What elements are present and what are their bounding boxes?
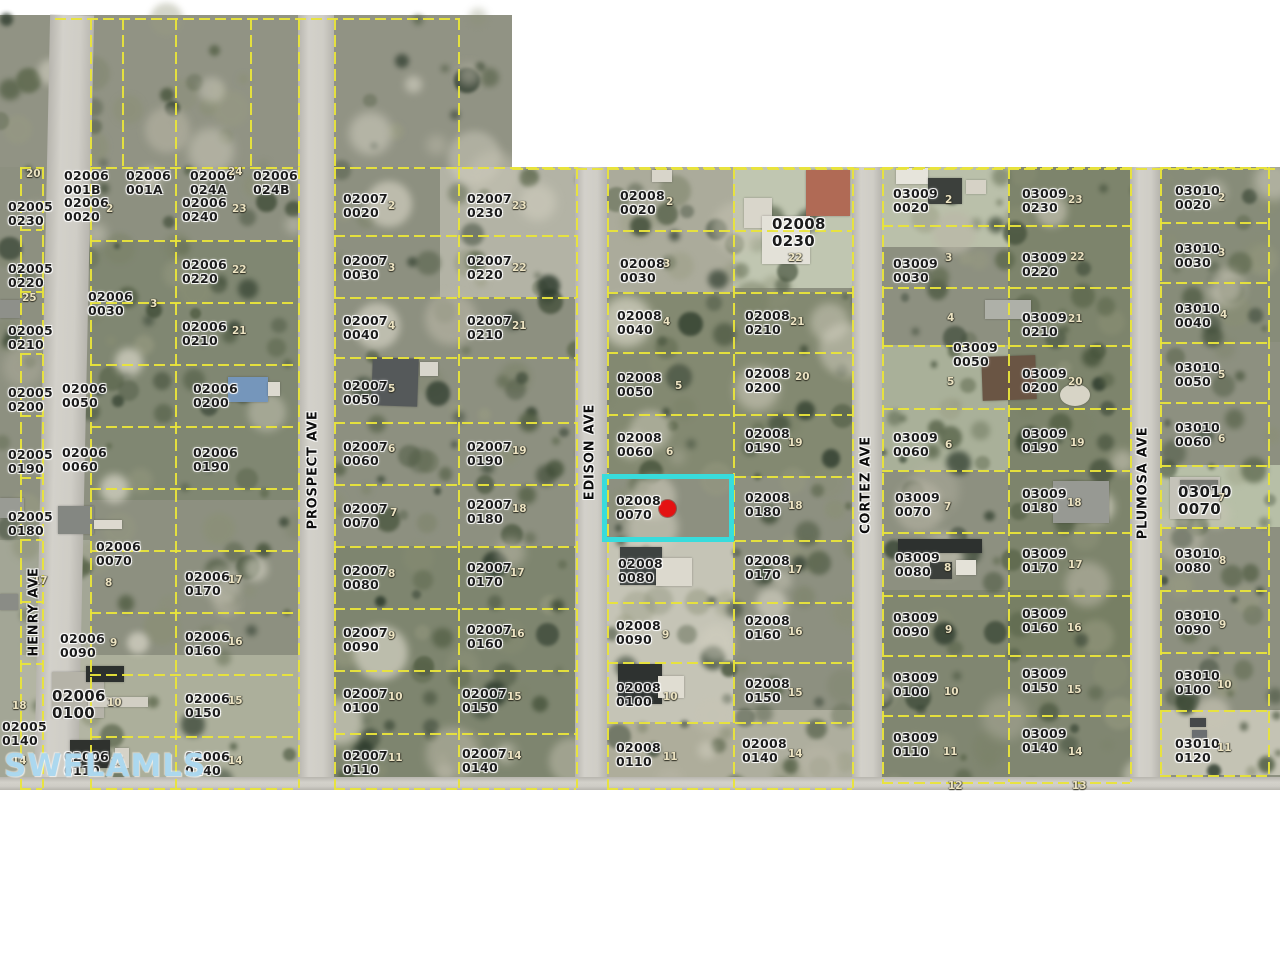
aerial-imagery-base <box>0 15 1280 790</box>
watermark: SWFLAMLS <box>4 748 206 784</box>
white-margin-bottom <box>0 790 1280 960</box>
mls-aerial-parcel-map-page: 02005 023002005 022002005 021002005 0200… <box>0 0 1280 960</box>
parcel-map[interactable]: 02005 023002005 022002005 021002005 0200… <box>0 0 1280 960</box>
